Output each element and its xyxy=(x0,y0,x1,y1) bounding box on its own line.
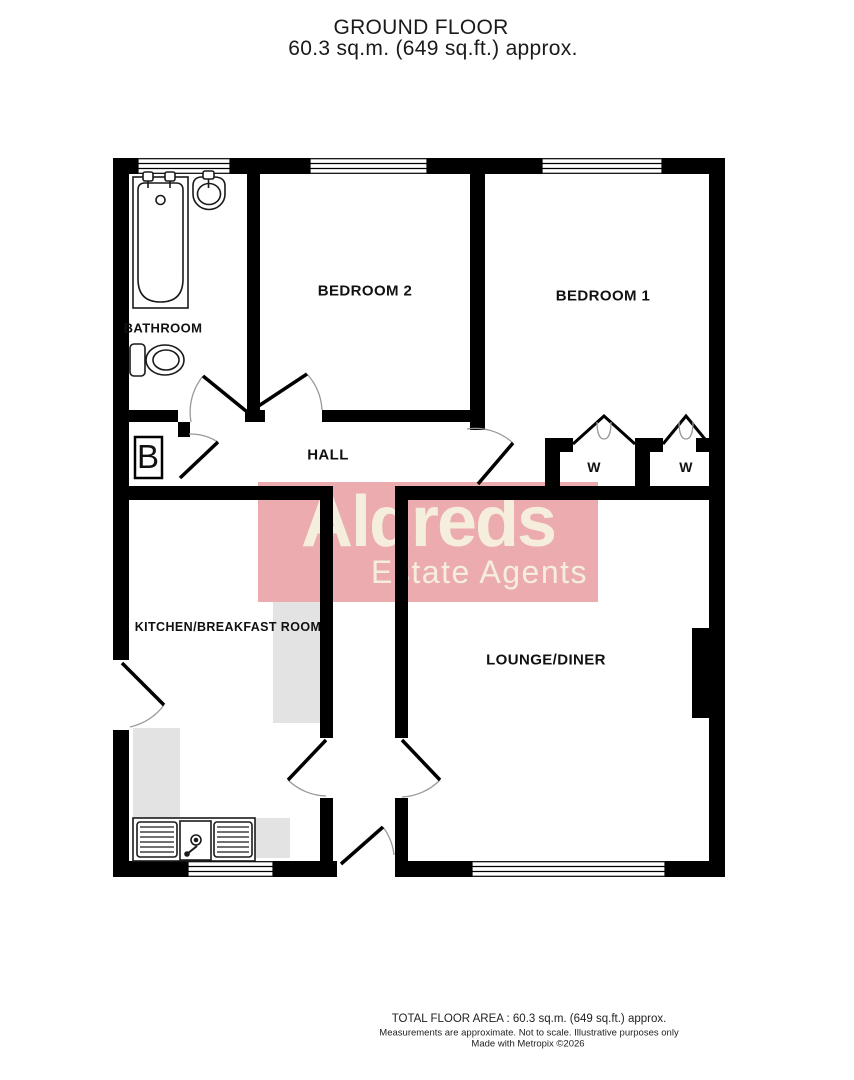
bathroom-window xyxy=(138,159,230,174)
outer-walls xyxy=(113,158,725,877)
hall-label: HALL xyxy=(307,447,349,464)
kitchen-sink xyxy=(133,818,255,861)
entrance-door xyxy=(341,827,383,864)
lounge-door xyxy=(402,740,440,780)
bedroom2-door-arc xyxy=(307,374,322,410)
bedroom1-door xyxy=(478,443,513,484)
wardrobe2-label: W xyxy=(679,459,693,475)
bathroom-door xyxy=(203,376,246,411)
lounge-label: LOUNGE/DINER xyxy=(486,652,606,669)
bedroom1-door-arc xyxy=(467,428,513,443)
floorplan-drawing xyxy=(0,0,854,1080)
kitchen-label: KITCHEN/BREAKFAST ROOM xyxy=(135,620,322,634)
kitchen-external-door xyxy=(122,663,164,705)
bath-drain xyxy=(156,196,165,205)
bathroom-door-arc xyxy=(190,376,203,422)
lounge-door-arc xyxy=(402,780,440,797)
chimney-breast xyxy=(692,628,709,718)
bathroom-label: BATHROOM xyxy=(124,321,203,336)
kitchen-window xyxy=(188,862,273,877)
toilet xyxy=(130,344,184,376)
wardrobe1-label: W xyxy=(587,459,601,475)
total-floor-area: TOTAL FLOOR AREA : 60.3 sq.m. (649 sq.ft… xyxy=(392,1013,667,1025)
bedroom1-label: BEDROOM 1 xyxy=(556,288,650,305)
floorplan-page: GROUND FLOOR 60.3 sq.m. (649 sq.ft.) app… xyxy=(0,0,854,1080)
bedroom2-label: BEDROOM 2 xyxy=(318,283,412,300)
bedroom1-window xyxy=(542,159,662,174)
boiler-label: B xyxy=(137,438,159,476)
cupboard-door-arc xyxy=(189,434,218,442)
kitchen-external-door-arc xyxy=(130,705,164,727)
bedroom2-window xyxy=(310,159,427,174)
kitchen-door xyxy=(288,740,326,780)
sink-basin xyxy=(193,171,225,210)
kitchen-door-arc xyxy=(288,780,326,796)
lounge-window xyxy=(472,862,665,877)
disclaimer: Measurements are approximate. Not to sca… xyxy=(379,1028,678,1039)
metropix-credit: Made with Metropix ©2026 xyxy=(471,1039,584,1050)
cupboard-door xyxy=(180,442,218,478)
bathtub xyxy=(133,172,188,308)
entrance-door-arc xyxy=(383,827,394,855)
